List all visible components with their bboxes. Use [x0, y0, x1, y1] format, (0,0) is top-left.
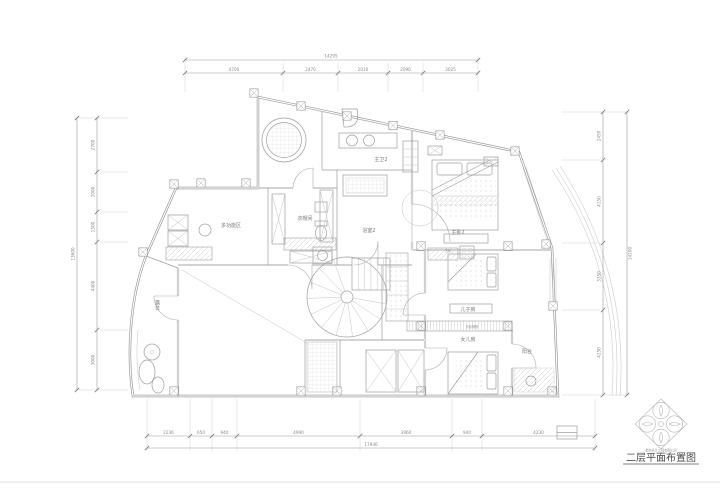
- dim-bottom-total: 17946: [364, 442, 378, 447]
- master-bed: [402, 146, 498, 243]
- label-bathroom2: 浴室2: [362, 227, 375, 234]
- dim-right-total: 14200: [628, 247, 633, 261]
- dim-bottom-5: 940: [463, 430, 471, 435]
- dim-right-2: 3350: [597, 271, 602, 282]
- dim-left-total: 13600: [71, 247, 76, 261]
- floor-plan-drawing: 衣柜隔断 衣柜 多功能区 衣帽间 浴室2 主卫2 主卧2 儿子房 女儿房: [0, 0, 720, 504]
- dim-bottom-3: 4990: [293, 430, 304, 435]
- stamp-caption: 装饰设计工程有限公司: [645, 448, 677, 453]
- dim-bottom-2: 940: [221, 430, 229, 435]
- jacuzzi: [262, 118, 306, 162]
- column-markers: [139, 89, 557, 395]
- dim-left-0: 2700: [91, 139, 96, 150]
- windows: [300, 107, 556, 306]
- label-multi-function: 多功能区: [221, 222, 241, 229]
- floor-line: [182, 270, 307, 343]
- partition-note: 衣柜隔断: [466, 324, 480, 329]
- service-block: [307, 342, 424, 392]
- dim-bottom-6: 4230: [533, 430, 544, 435]
- dim-right-3: 4250: [597, 347, 602, 358]
- label-master-bath2: 主卫2: [374, 156, 387, 163]
- terrace-furniture: [137, 330, 164, 393]
- curved-site-line: [552, 166, 621, 396]
- dim-left-2: 1500: [91, 221, 96, 232]
- dim-left-1: 2000: [91, 186, 96, 197]
- dim-right-1: 4150: [597, 196, 602, 207]
- label-son-room: 儿子房: [460, 306, 475, 313]
- spiral-stair: [307, 257, 390, 337]
- dim-top-4: 3025: [445, 67, 456, 72]
- compass-logo: [635, 399, 687, 449]
- dim-left-4: 3000: [91, 354, 96, 365]
- balcony-furniture: [514, 368, 554, 392]
- drawing-sheet: 衣柜隔断 衣柜 多功能区 衣帽间 浴室2 主卫2 主卧2 儿子房 女儿房: [0, 0, 720, 504]
- dim-right-0: 2450: [597, 130, 602, 141]
- daughter-room-furniture: [448, 352, 498, 394]
- closet-note: 衣柜: [445, 248, 452, 253]
- label-balcony: 阳台: [522, 348, 532, 355]
- dim-top-total: 14295: [324, 54, 338, 59]
- corridor-closet: [386, 253, 408, 321]
- dim-left-3: 4400: [91, 280, 96, 291]
- dim-top-0: 4700: [229, 67, 240, 72]
- dim-top-1: 2470: [305, 67, 316, 72]
- son-room-furniture: [428, 246, 498, 313]
- label-terrace: 露台: [154, 300, 160, 311]
- multi-function-furniture: [166, 215, 212, 260]
- dim-bottom-1: 650: [197, 430, 205, 435]
- dim-bottom-0: 2236: [163, 430, 174, 435]
- label-cloakroom: 衣帽间: [297, 215, 312, 222]
- dim-top-2: 2010: [358, 67, 369, 72]
- exterior-walls: [130, 97, 558, 396]
- dim-top-3: 2090: [400, 67, 411, 72]
- label-master-bedroom2: 主卧2: [451, 229, 464, 236]
- dim-bottom-4: 3960: [401, 430, 412, 435]
- revision-box: [557, 426, 577, 439]
- label-daughter-room: 女儿房: [460, 336, 475, 343]
- drawing-title: 二层平面布置图: [626, 452, 696, 464]
